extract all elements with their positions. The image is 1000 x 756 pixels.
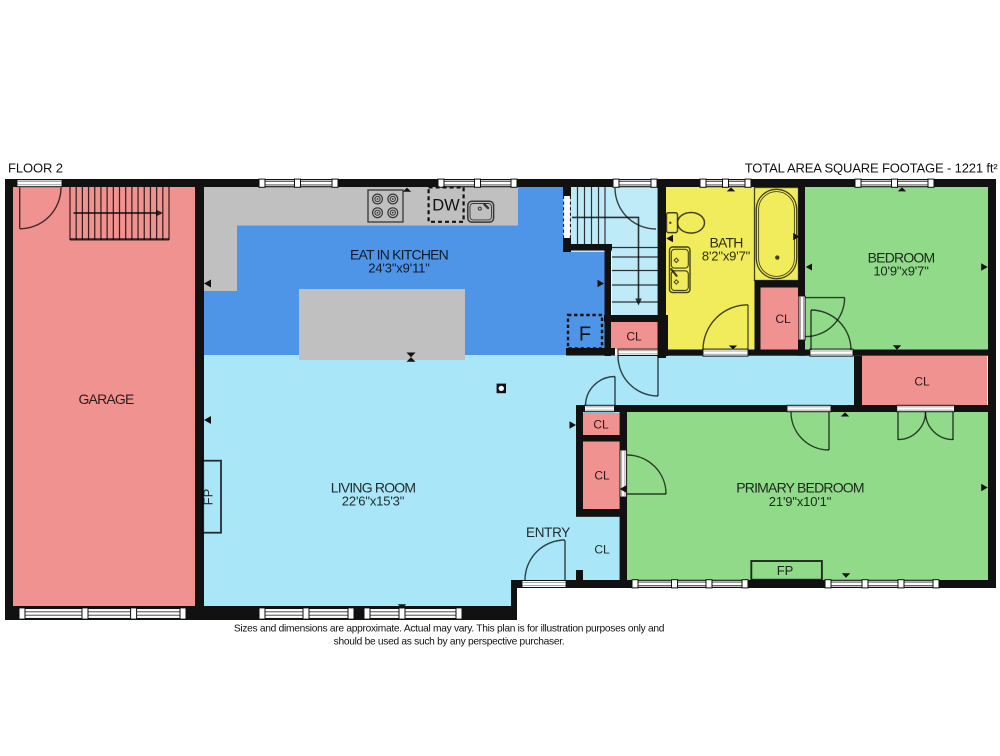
svg-text:10'9"x9'7": 10'9"x9'7" xyxy=(873,264,929,279)
svg-text:FLOOR 2: FLOOR 2 xyxy=(8,161,63,176)
svg-text:CL: CL xyxy=(914,375,930,389)
svg-text:CL: CL xyxy=(593,418,609,432)
svg-text:FP: FP xyxy=(201,489,216,506)
svg-text:CL: CL xyxy=(775,312,791,326)
svg-text:FP: FP xyxy=(777,563,794,578)
svg-text:should be used as such by any: should be used as such by any perspectiv… xyxy=(334,637,565,648)
svg-text:F: F xyxy=(579,324,591,346)
svg-text:21'9"x10'1": 21'9"x10'1" xyxy=(769,494,832,509)
svg-text:TOTAL AREA SQUARE FOOTAGE - 12: TOTAL AREA SQUARE FOOTAGE - 1221 ft² xyxy=(745,161,999,176)
svg-text:24'3"x9'11": 24'3"x9'11" xyxy=(368,261,430,276)
svg-text:Sizes and dimensions are appro: Sizes and dimensions are approximate. Ac… xyxy=(234,624,665,635)
svg-text:ENTRY: ENTRY xyxy=(526,525,570,540)
svg-text:GARAGE: GARAGE xyxy=(78,391,134,407)
svg-text:8'2"x9'7": 8'2"x9'7" xyxy=(702,249,751,264)
svg-text:22'6"x15'3": 22'6"x15'3" xyxy=(342,494,405,509)
svg-text:CL: CL xyxy=(626,330,642,344)
svg-text:CL: CL xyxy=(594,543,610,557)
svg-text:CL: CL xyxy=(594,469,610,483)
svg-text:DW: DW xyxy=(432,197,460,215)
